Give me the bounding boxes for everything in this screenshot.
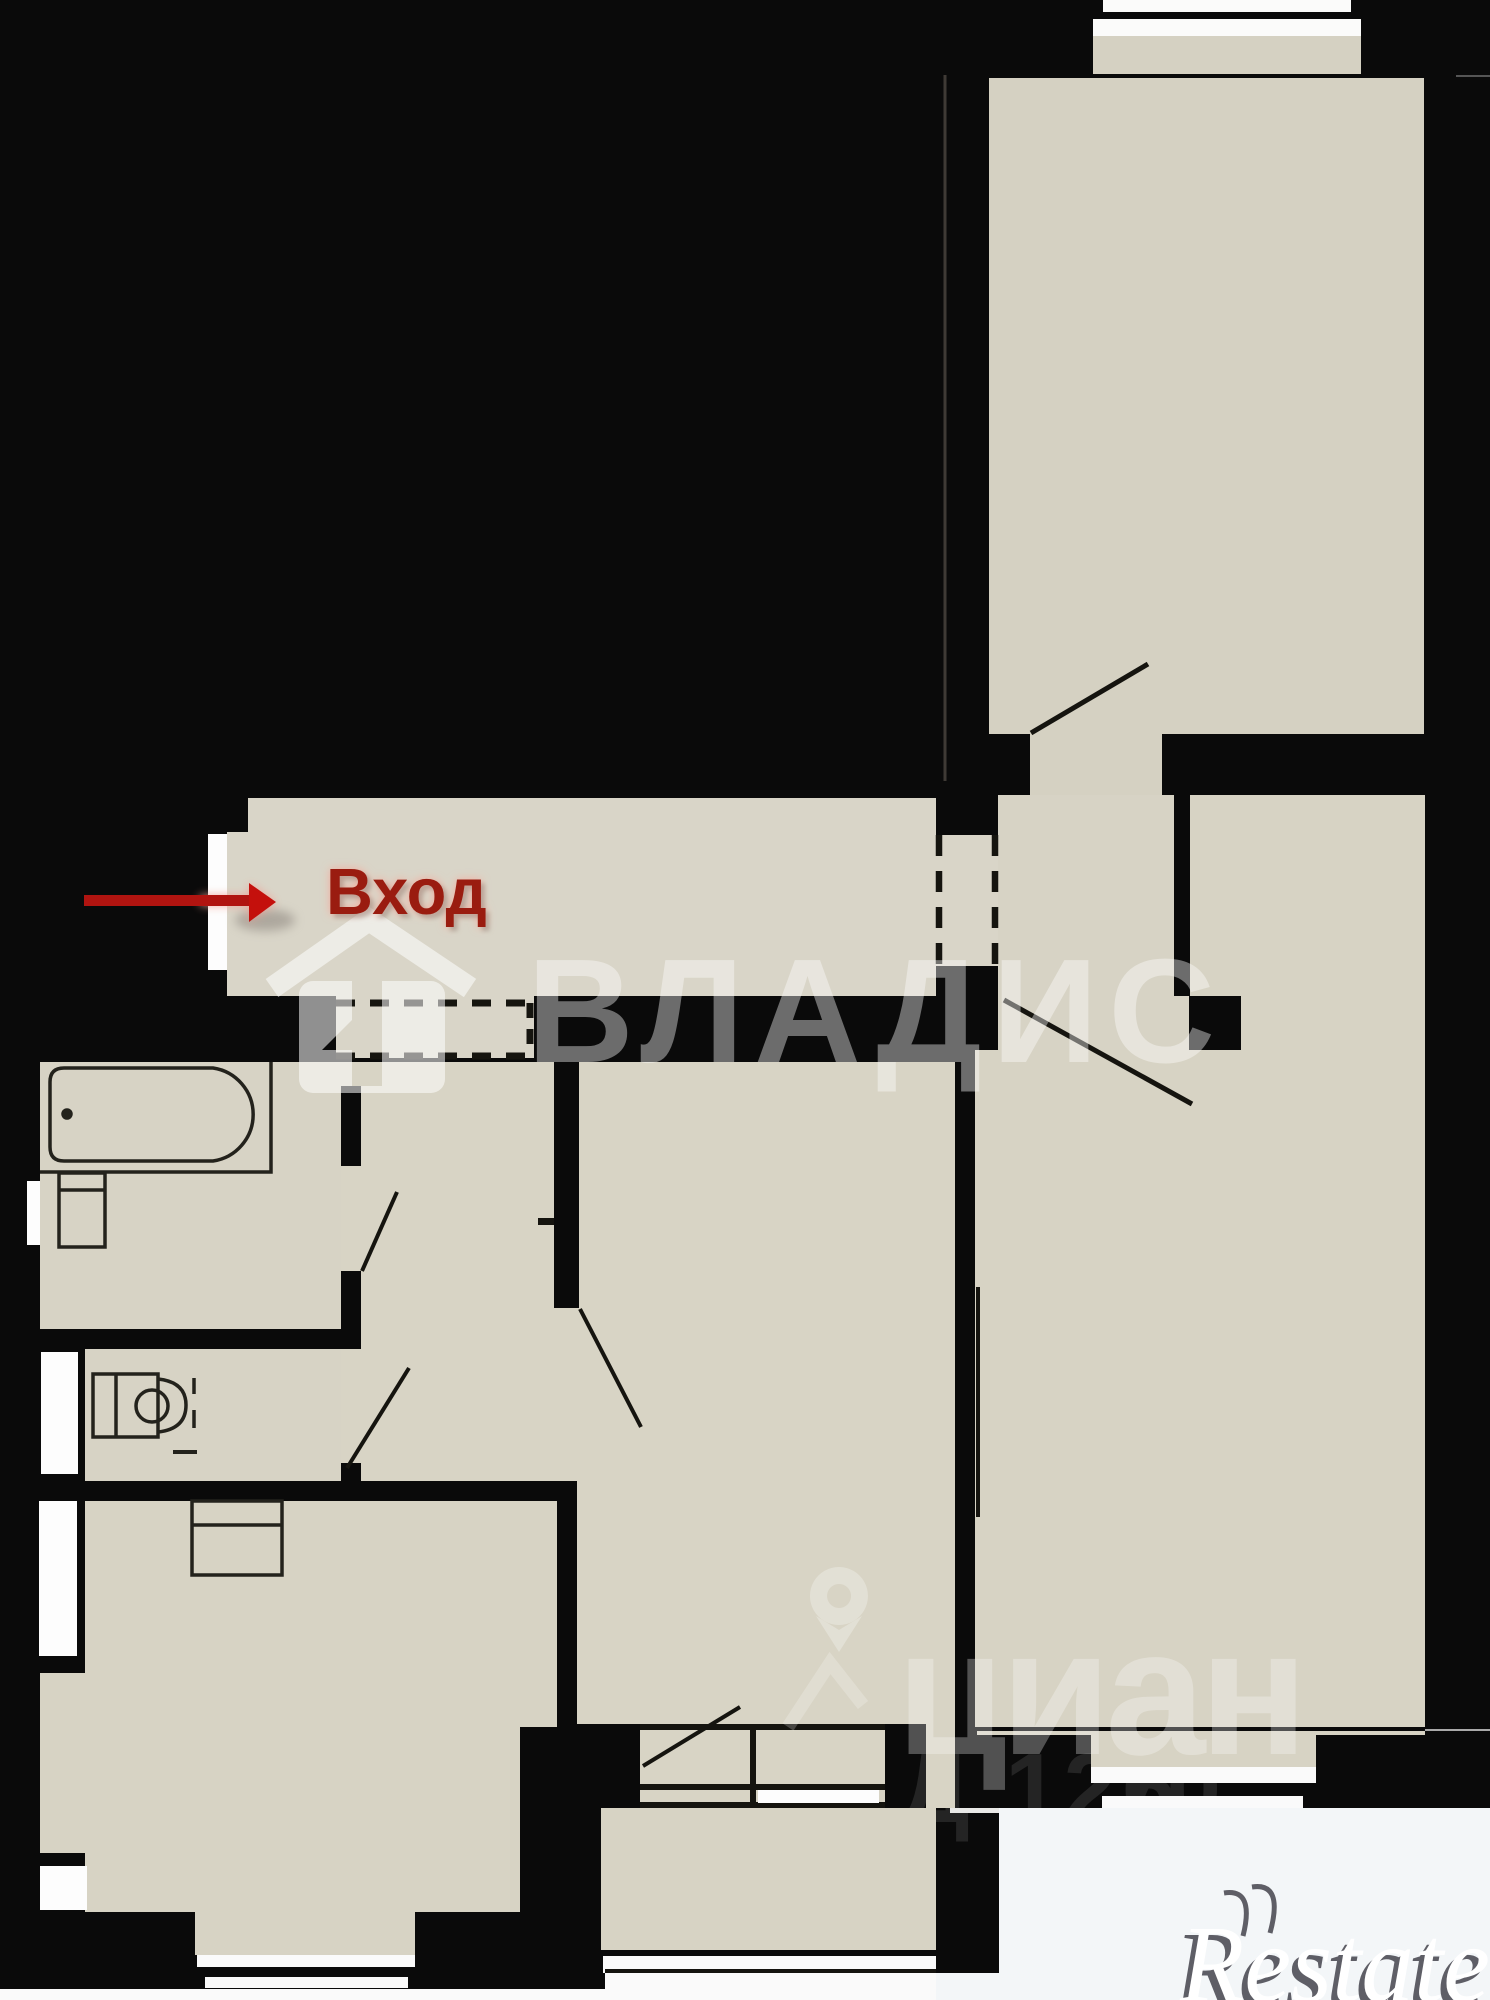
- svg-text:ВЛАДИС: ВЛАДИС: [527, 929, 1225, 1094]
- svg-text:Вход: Вход: [326, 855, 487, 928]
- svg-text:Restate: Restate: [1179, 1903, 1490, 2000]
- svg-text:циан: циан: [896, 1592, 1302, 1793]
